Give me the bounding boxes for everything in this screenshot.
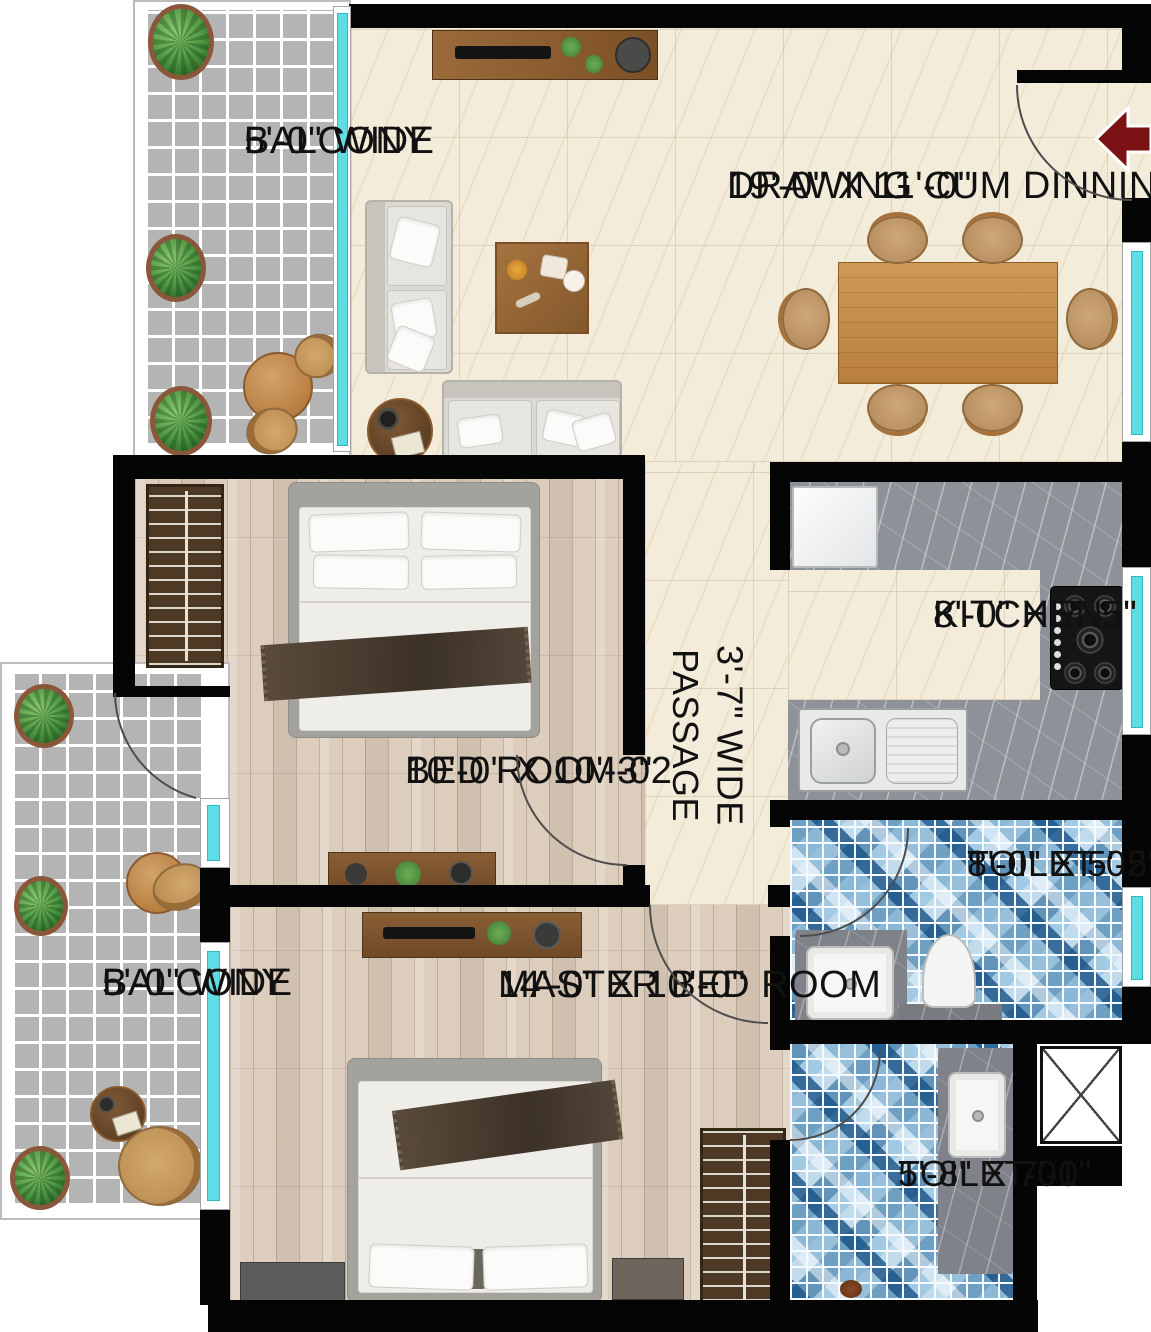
drawing-room-window bbox=[1122, 242, 1151, 442]
hob-knob bbox=[1054, 651, 1061, 658]
potted-plant bbox=[14, 876, 68, 936]
wall bbox=[790, 1020, 1122, 1044]
wall bbox=[770, 1140, 790, 1302]
shaft-box bbox=[1040, 1046, 1122, 1144]
passage-name: PASSAGE bbox=[662, 649, 707, 822]
wall bbox=[770, 800, 790, 827]
tv bbox=[455, 46, 551, 59]
wall bbox=[768, 885, 790, 907]
basin-drain bbox=[972, 1110, 984, 1122]
room-dim: 14'-0" X 10'-0" bbox=[498, 962, 746, 1009]
entry-door-leaf bbox=[1017, 70, 1151, 83]
window-glass bbox=[207, 805, 220, 861]
decor-tray bbox=[533, 921, 561, 949]
balcony-window bbox=[200, 798, 230, 868]
wardrobe-rail bbox=[743, 1135, 746, 1312]
record-player bbox=[377, 408, 399, 430]
plant-decor bbox=[585, 55, 603, 73]
wall bbox=[1122, 987, 1151, 1044]
decor-tray bbox=[449, 861, 473, 885]
window-glass bbox=[1131, 896, 1143, 980]
window-glass bbox=[1131, 251, 1143, 435]
sink-drainboard bbox=[886, 718, 958, 784]
decor-tray bbox=[615, 37, 651, 73]
balcony-top-window bbox=[333, 6, 351, 452]
dining-chair bbox=[962, 216, 1023, 264]
wall bbox=[113, 479, 135, 689]
wall bbox=[349, 4, 1151, 28]
floor-plan: BALCONY 5'-0" WIDE DRAWING CUM DINNING 1… bbox=[0, 0, 1151, 1332]
bed bbox=[288, 482, 540, 738]
wall bbox=[113, 455, 645, 479]
potted-plant bbox=[146, 234, 206, 302]
washbasin bbox=[948, 1072, 1006, 1158]
decor-tray bbox=[345, 863, 367, 885]
hob-knob bbox=[1054, 639, 1061, 646]
passage-dim: 3'-7" WIDE bbox=[707, 645, 752, 826]
wall bbox=[790, 800, 1122, 820]
wall bbox=[770, 462, 1122, 482]
plant-decor bbox=[561, 37, 581, 57]
room-dim: 5'-0" WIDE bbox=[244, 118, 434, 165]
burner bbox=[1093, 661, 1117, 685]
sink-drain bbox=[836, 742, 850, 756]
wall bbox=[200, 1210, 230, 1305]
sheet-fold bbox=[358, 1177, 593, 1179]
bed-pillow bbox=[421, 554, 518, 590]
room-dim: 5'-0" WIDE bbox=[102, 960, 292, 1007]
dresser bbox=[362, 912, 582, 958]
room-dim: 10'-0" X 10'-3" bbox=[405, 748, 653, 795]
bed-pillow bbox=[482, 1243, 588, 1291]
hob-knob bbox=[1054, 663, 1061, 670]
potted-plant bbox=[14, 684, 74, 748]
window-glass bbox=[337, 13, 348, 446]
passage-label: 3'-7" WIDE PASSAGE bbox=[646, 580, 768, 890]
dining-chair bbox=[1066, 288, 1114, 350]
bed-pillow bbox=[313, 554, 410, 590]
room-dim: 8'-0" X 5'-5" bbox=[967, 842, 1151, 887]
wall bbox=[623, 479, 645, 755]
bed-pillow bbox=[420, 511, 521, 552]
tv-cabinet bbox=[240, 1262, 345, 1304]
toilet2-window bbox=[1122, 887, 1151, 987]
spoon bbox=[514, 291, 541, 309]
nightstand bbox=[612, 1258, 684, 1300]
tv bbox=[383, 927, 475, 939]
kitchen-sink bbox=[798, 708, 968, 792]
wall bbox=[208, 1300, 1038, 1332]
burner bbox=[1063, 661, 1087, 685]
room-dim: 19'-0" X 11'-0" bbox=[727, 163, 972, 210]
wardrobe bbox=[146, 484, 224, 668]
wall bbox=[1122, 442, 1151, 567]
sheet-fold bbox=[299, 601, 531, 603]
coffee-table bbox=[495, 242, 589, 334]
dining-chair bbox=[782, 288, 830, 350]
dining-table bbox=[838, 262, 1058, 384]
wall bbox=[210, 885, 650, 907]
tv-unit bbox=[432, 30, 658, 80]
sofa bbox=[365, 200, 453, 374]
snack-bowl bbox=[507, 260, 527, 280]
bed-pillow bbox=[368, 1243, 474, 1291]
potted-plant bbox=[150, 386, 212, 456]
wardrobe-rail bbox=[185, 491, 188, 662]
floor-drain bbox=[840, 1280, 862, 1298]
potted-plant bbox=[148, 4, 214, 80]
dining-chair bbox=[867, 384, 928, 432]
dining-chair bbox=[867, 216, 928, 264]
pillow bbox=[456, 413, 504, 449]
refrigerator bbox=[792, 486, 878, 568]
wall bbox=[770, 482, 790, 570]
wall bbox=[1122, 735, 1151, 800]
dining-chair bbox=[962, 384, 1023, 432]
room-dim: 8'-0" X 7'-5" bbox=[933, 592, 1137, 639]
plant-decor bbox=[395, 861, 421, 887]
plate bbox=[563, 270, 585, 292]
cup bbox=[98, 1096, 115, 1113]
room-dim: 5'-8" X 7'-0" bbox=[898, 1152, 1092, 1197]
potted-plant bbox=[10, 1146, 70, 1210]
bed-pillow bbox=[308, 511, 409, 552]
balcony-chair bbox=[118, 1126, 202, 1206]
plant-decor bbox=[487, 921, 511, 945]
